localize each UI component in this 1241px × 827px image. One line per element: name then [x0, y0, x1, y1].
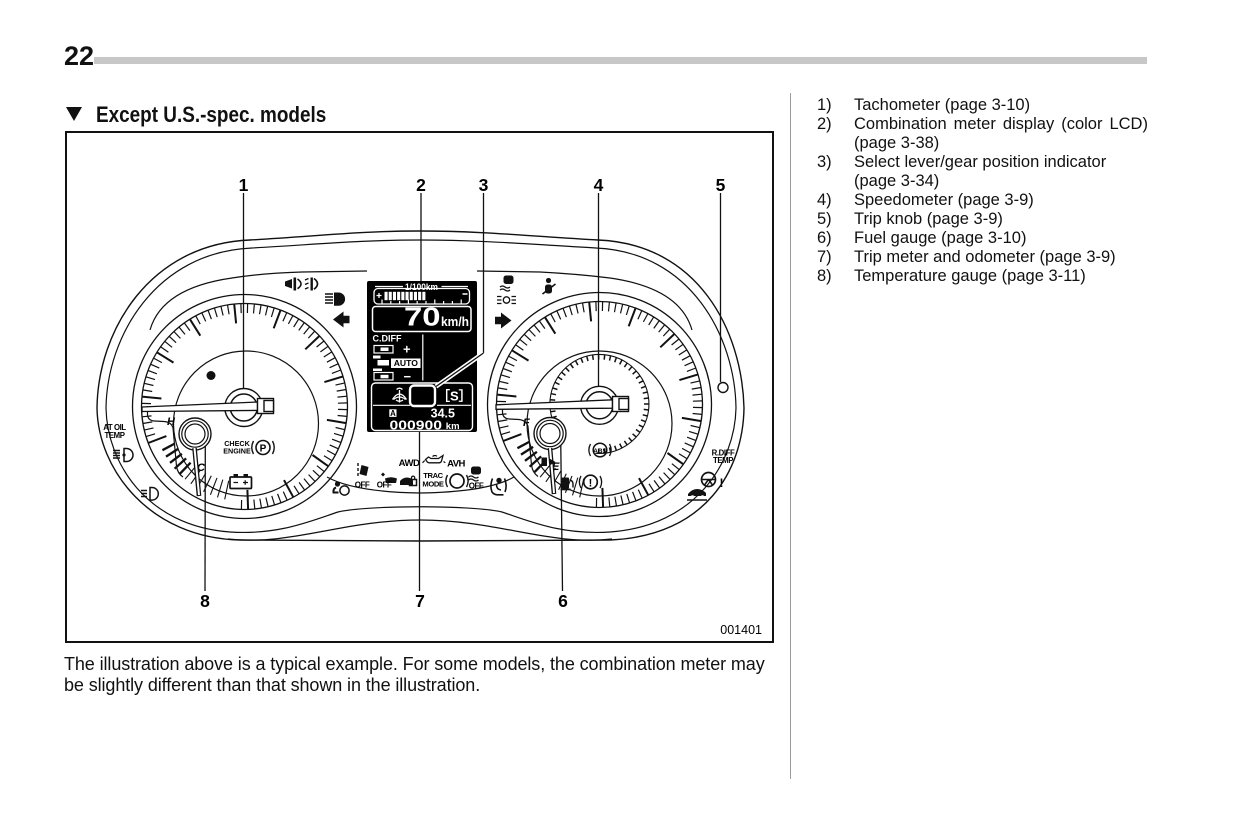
svg-text:001401: 001401: [720, 623, 762, 637]
svg-text:8: 8: [200, 591, 210, 611]
svg-text:TEMP: TEMP: [713, 456, 733, 465]
svg-text:TEMP: TEMP: [104, 431, 124, 440]
svg-text:AUTO: AUTO: [394, 358, 419, 368]
svg-text:4: 4: [594, 175, 604, 195]
svg-text:MODE: MODE: [422, 480, 444, 489]
svg-text:OFF: OFF: [377, 481, 392, 490]
svg-text:OFF: OFF: [469, 482, 484, 491]
svg-text:［S］: ［S］: [437, 389, 472, 404]
svg-text:−: −: [404, 369, 412, 384]
svg-text:!: !: [589, 478, 593, 490]
svg-text:1: 1: [239, 175, 249, 195]
svg-text:OFF: OFF: [355, 481, 370, 490]
svg-text:5: 5: [716, 175, 726, 195]
svg-text:!: !: [720, 476, 724, 490]
svg-text:ABS: ABS: [593, 448, 607, 455]
svg-text:2: 2: [416, 175, 426, 195]
svg-text:AVH: AVH: [447, 459, 465, 470]
svg-text:6: 6: [558, 591, 568, 611]
svg-text:C.DIFF: C.DIFF: [373, 334, 402, 344]
svg-text:km/h: km/h: [441, 314, 469, 329]
svg-text:km: km: [446, 421, 460, 432]
svg-text:70: 70: [404, 302, 441, 332]
svg-text:P: P: [260, 444, 267, 455]
svg-text:7: 7: [415, 591, 425, 611]
svg-text:000900: 000900: [390, 417, 443, 432]
svg-text:1/100km: 1/100km: [405, 282, 438, 293]
svg-text:+: +: [403, 342, 411, 357]
svg-text:3: 3: [479, 175, 489, 195]
svg-text:ENGINE: ENGINE: [223, 447, 251, 456]
svg-text:AWD: AWD: [399, 458, 420, 469]
